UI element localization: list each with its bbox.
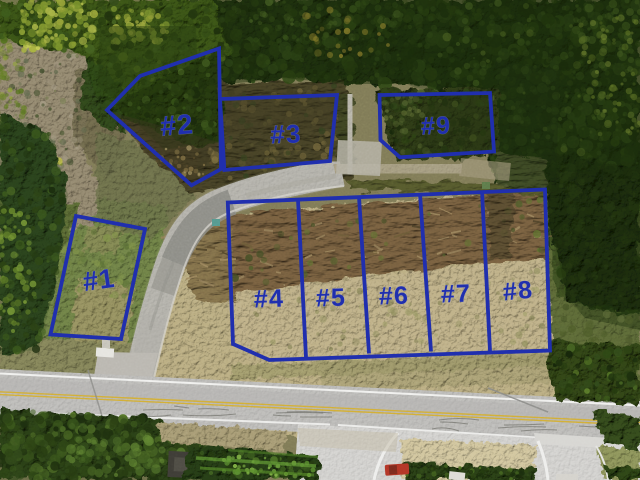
svg-text:#7: #7 — [440, 279, 471, 308]
svg-text:#2: #2 — [159, 108, 195, 142]
svg-text:#6: #6 — [378, 281, 409, 310]
svg-text:#8: #8 — [502, 275, 535, 306]
svg-text:#9: #9 — [420, 111, 451, 140]
svg-text:#5: #5 — [315, 283, 346, 312]
svg-text:#3: #3 — [270, 118, 302, 149]
svg-text:#1: #1 — [81, 263, 117, 297]
svg-text:#4: #4 — [253, 284, 284, 313]
